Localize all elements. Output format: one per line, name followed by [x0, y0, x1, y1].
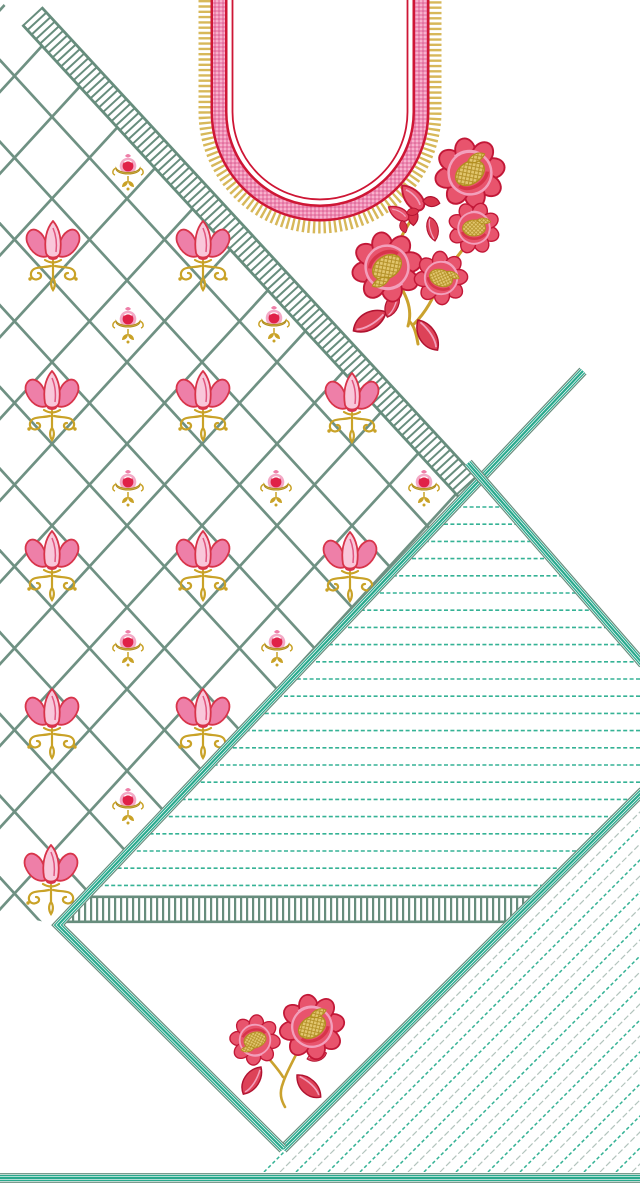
- embroidery-artwork: [0, 0, 640, 1188]
- neckline-inner-line: [233, 0, 408, 199]
- tulip-motif: [326, 373, 379, 442]
- bud-motif: [259, 306, 289, 343]
- rose-sprig-small: [228, 989, 350, 1107]
- bud-motif: [113, 788, 143, 825]
- rose-spray-large: [345, 131, 511, 355]
- tulip-motif: [26, 689, 79, 758]
- bud-motif: [113, 307, 143, 344]
- bud-motif: [113, 470, 143, 507]
- comb-border-band: [48, 897, 547, 922]
- diamond-right-edge-band: [283, 791, 640, 1149]
- tulip-motif: [177, 371, 230, 440]
- embroidery-design-sheet: [0, 0, 640, 1188]
- tulip-motif: [177, 221, 230, 290]
- bud-motif: [113, 630, 143, 667]
- tulip-motif: [177, 531, 230, 600]
- neckline-border: [205, 0, 436, 227]
- bud-motif: [409, 470, 439, 507]
- tulip-motif: [25, 845, 78, 914]
- neckline-pink-mesh: [219, 0, 421, 213]
- tulip-motif: [27, 221, 80, 290]
- tulip-motif: [26, 531, 79, 600]
- bud-motif: [262, 630, 292, 667]
- neckline-gold-fringe: [205, 0, 436, 227]
- upper-right-diagonal-band: [468, 463, 640, 664]
- bud-motif: [261, 470, 291, 507]
- tulip-motif: [26, 371, 79, 440]
